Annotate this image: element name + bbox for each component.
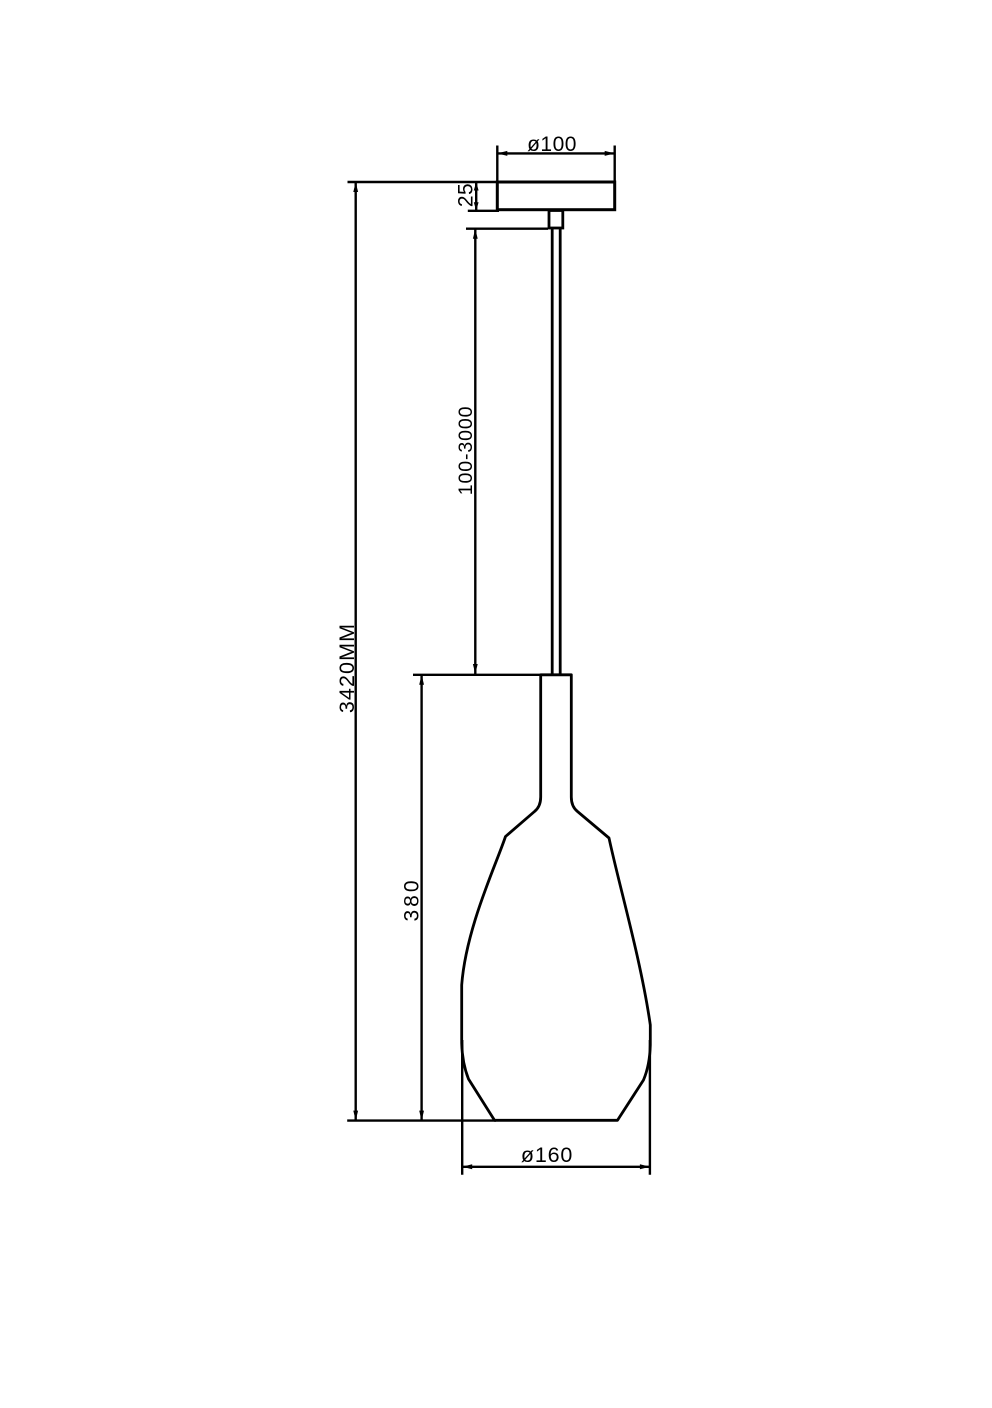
svg-text:ø100: ø100: [527, 133, 577, 156]
svg-text:ø160: ø160: [521, 1143, 573, 1167]
svg-text:3420MM: 3420MM: [335, 623, 359, 713]
svg-text:380: 380: [401, 877, 424, 921]
svg-text:25: 25: [455, 183, 478, 207]
svg-text:100-3000: 100-3000: [455, 406, 477, 496]
